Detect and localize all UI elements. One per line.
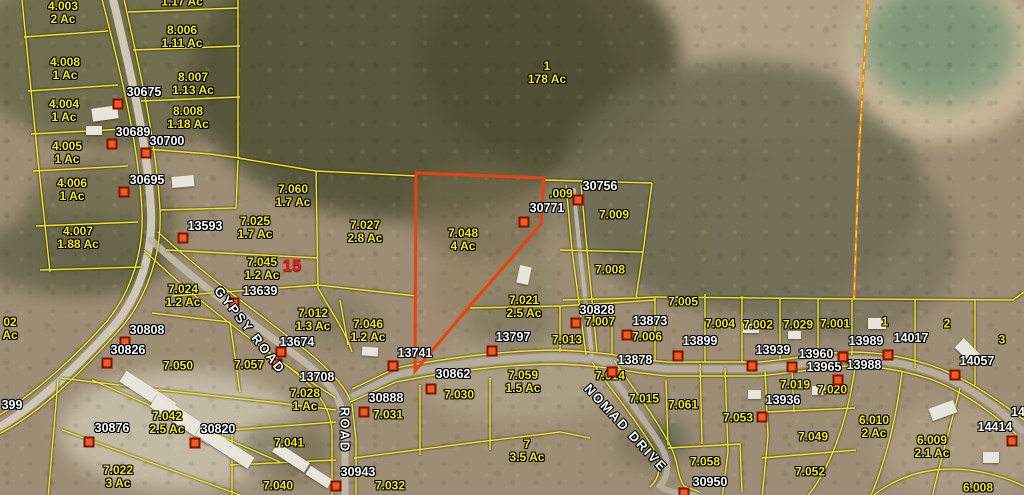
parcel-label: 4.0061 Ac: [57, 177, 87, 203]
parcel-acreage: 1.88 Ac: [57, 238, 99, 251]
parcel-label: 7.029: [783, 319, 813, 332]
parcel-label: 4.0051 Ac: [52, 140, 82, 166]
parcel-number: 7.053: [723, 412, 753, 425]
parcel-number: 7.052: [795, 466, 825, 479]
parcel-label: 7.031: [373, 409, 403, 422]
parcel-sale-marker[interactable]: [359, 407, 370, 418]
parcel-label: 7.0241.2 Ac: [166, 283, 201, 309]
parcel-sale-marker[interactable]: [571, 318, 582, 329]
marker-id-label: 30826: [111, 343, 146, 357]
parcel-sale-marker[interactable]: [426, 384, 437, 395]
parcel-number: 7.013: [552, 334, 582, 347]
parcel-label: 7.0223 Ac: [103, 464, 133, 490]
parcel-number: 7.001: [820, 318, 850, 331]
parcel-acreage: 1.18 Ac: [167, 118, 209, 131]
parcel-label: 7.052: [795, 466, 825, 479]
parcel-label: 7.0461.2 Ac: [351, 318, 386, 344]
parcel-label: 7.013: [552, 334, 582, 347]
parcel-sale-marker[interactable]: [573, 195, 584, 206]
marker-id-label: 13989: [849, 334, 884, 348]
parcel-sale-marker[interactable]: [1007, 436, 1018, 447]
parcel-sale-marker[interactable]: [487, 346, 498, 357]
labels-layer: 4.0032 Ac4.0081 Ac4.0041 Ac4.0051 Ac4.00…: [0, 0, 1024, 495]
parcel-number: 7.061: [668, 399, 698, 412]
marker-id-label: 13960: [799, 347, 834, 361]
parcel-label: 7.041: [274, 437, 304, 450]
parcel-acreage: 2.5 Ac: [150, 423, 185, 436]
marker-id-label: 399: [2, 398, 23, 412]
parcel-acreage: 2.8 Ac: [348, 232, 383, 245]
parcel-acreage: 1 Ac: [50, 69, 80, 82]
parcel-sale-marker[interactable]: [607, 367, 618, 378]
parcel-acreage: 1.2 Ac: [245, 269, 280, 282]
parcel-sale-marker[interactable]: [622, 330, 633, 341]
parcel-label: 4.0041 Ac: [49, 98, 79, 124]
parcel-label: 7.0121.3 Ac: [296, 307, 331, 333]
parcel-sale-marker[interactable]: [107, 139, 118, 150]
marker-id-label: 13873: [633, 314, 668, 328]
parcel-label: 7.0601.7 Ac: [276, 183, 311, 209]
parcel-number: 7.057: [234, 359, 264, 372]
marker-id-label: 13899: [683, 334, 718, 348]
parcel-label: 7.002: [743, 319, 773, 332]
parcel-label: 8.0081.18 Ac: [167, 105, 209, 131]
parcel-acreage: 2.1 Ac: [915, 447, 950, 460]
parcel-number: 7.004: [705, 318, 735, 331]
parcel-label: 7.040: [263, 480, 293, 493]
parcel-acreage: 1.2 Ac: [166, 296, 201, 309]
parcel-number: 7.031: [373, 409, 403, 422]
parcel-number: 3: [999, 334, 1006, 347]
parcel-label: 7.0272.8 Ac: [348, 219, 383, 245]
parcel-sale-marker[interactable]: [679, 488, 690, 495]
parcel-acreage: 178 Ac: [528, 73, 566, 86]
parcel-sale-marker[interactable]: [190, 438, 201, 449]
parcel-sale-marker[interactable]: [833, 375, 844, 386]
marker-id-label: 13965: [807, 360, 842, 374]
marker-id-label: 30888: [369, 391, 404, 405]
parcel-number: .009: [549, 188, 572, 201]
parcel-label: 6.008: [963, 482, 993, 495]
parcel-sale-marker[interactable]: [119, 187, 130, 198]
parcel-label: 7.053: [723, 412, 753, 425]
marker-id-label: 13878: [618, 353, 653, 367]
parcel-sale-marker[interactable]: [84, 437, 95, 448]
parcel-acreage: 1 Ac: [52, 153, 82, 166]
parcel-number: 7.058: [690, 456, 720, 469]
parcel-label: 7.0591.5 Ac: [506, 369, 541, 395]
parcel-label: 7.015: [629, 393, 659, 406]
parcel-acreage: 2.5 Ac: [507, 307, 542, 320]
marker-id-label: 13674: [280, 335, 315, 349]
parcel-label: 7.005: [668, 296, 698, 309]
parcel-sale-marker[interactable]: [747, 361, 758, 372]
parcel-label: 6.0102 Ac: [859, 414, 889, 440]
route-number-label: 15: [283, 256, 302, 276]
parcel-sale-marker[interactable]: [883, 350, 894, 361]
parcel-sale-marker[interactable]: [331, 481, 342, 492]
marker-id-label: 13741: [398, 346, 433, 360]
parcel-label: 1: [882, 316, 889, 329]
parcel-acreage: 3 Ac: [103, 477, 133, 490]
parcel-label: 2: [944, 318, 951, 331]
parcel-number: 7.041: [274, 437, 304, 450]
marker-id-label: 30808: [130, 323, 165, 337]
marker-id-label: 30771: [530, 201, 565, 215]
parcel-label: 1178 Ac: [528, 60, 566, 86]
road-name-label: ROAD: [338, 407, 353, 453]
parcel-number: 1: [882, 316, 889, 329]
parcel-number: 7.030: [444, 389, 474, 402]
parcel-label: 8.0071.13 Ac: [172, 71, 214, 97]
parcel-sale-marker[interactable]: [757, 412, 768, 423]
parcel-acreage: 1 Ac: [49, 111, 79, 124]
marker-id-label: 30700: [150, 134, 185, 148]
parcel-label: 02Ac: [2, 316, 17, 342]
parcel-acreage: 1.13 Ac: [172, 84, 214, 97]
parcel-sale-marker[interactable]: [102, 358, 113, 369]
parcel-label: 6.0092.1 Ac: [915, 434, 950, 460]
parcel-label: 73.5 Ac: [510, 438, 545, 464]
parcel-number: 7.007: [585, 316, 615, 329]
marker-id-label: 30828: [580, 303, 615, 317]
parcel-number: 7.008: [595, 264, 625, 277]
marker-id-label: 30950: [693, 475, 728, 489]
parcel-number: 7.002: [743, 319, 773, 332]
parcel-acreage: 1.17 Ac: [161, 0, 203, 9]
parcel-label: 7.004: [705, 318, 735, 331]
parcel-acreage: 4 Ac: [448, 240, 478, 253]
parcel-number: 7.019: [780, 379, 810, 392]
marker-id-label: 30756: [583, 179, 618, 193]
parcel-number: 7.006: [632, 331, 662, 344]
parcel-label: 7.006: [632, 331, 662, 344]
parcel-sale-marker[interactable]: [113, 99, 124, 110]
marker-id-label: 30695: [130, 173, 165, 187]
parcel-label: 4.0081 Ac: [50, 56, 80, 82]
parcel-acreage: 3.5 Ac: [510, 451, 545, 464]
parcel-label: 7.058: [690, 456, 720, 469]
marker-id-label: 14057: [960, 354, 995, 368]
parcel-label: 7.030: [444, 389, 474, 402]
marker-id-label: 30862: [436, 367, 471, 381]
parcel-acreage: 1.7 Ac: [276, 196, 311, 209]
parcel-sale-marker[interactable]: [673, 351, 684, 362]
parcel-sale-marker[interactable]: [519, 217, 530, 228]
parcel-label: 7.019: [780, 379, 810, 392]
parcel-sale-marker[interactable]: [388, 361, 399, 372]
parcel-acreage: Ac: [2, 329, 17, 342]
parcel-number: 7.040: [263, 480, 293, 493]
marker-id-label: 14: [1011, 405, 1024, 419]
parcel-number: 7.050: [163, 360, 193, 373]
parcel-label: 8.0061.11 Ac: [162, 24, 203, 50]
parcel-label: 7.0212.5 Ac: [507, 294, 542, 320]
parcel-number: 7.049: [798, 431, 828, 444]
marker-id-label: 14017: [894, 331, 929, 345]
parcel-acreage: 1.11 Ac: [162, 37, 203, 50]
marker-id-label: 13593: [188, 219, 223, 233]
parcel-label: 7.009: [599, 209, 629, 222]
parcel-label: 1.17 Ac: [161, 0, 203, 9]
marker-id-label: 13988: [847, 358, 882, 372]
parcel-sale-marker[interactable]: [950, 370, 961, 381]
parcel-sale-marker[interactable]: [141, 148, 152, 159]
parcel-label: 7.007: [585, 316, 615, 329]
parcel-acreage: 1.2 Ac: [351, 331, 386, 344]
parcel-acreage: 2 Ac: [859, 427, 889, 440]
parcel-sale-marker[interactable]: [838, 352, 849, 363]
marker-id-label: 30675: [127, 85, 162, 99]
parcel-label: 4.0032 Ac: [48, 0, 78, 26]
map-canvas[interactable]: 4.0032 Ac4.0081 Ac4.0041 Ac4.0051 Ac4.00…: [0, 0, 1024, 495]
parcel-acreage: 1.3 Ac: [296, 320, 331, 333]
parcel-acreage: 1.7 Ac: [238, 228, 273, 241]
parcel-label: .009: [549, 188, 572, 201]
parcel-sale-marker[interactable]: [787, 362, 798, 373]
parcel-acreage: 1 Ac: [290, 400, 320, 413]
parcel-number: 7.029: [783, 319, 813, 332]
parcel-label: 7.0422.5 Ac: [150, 410, 185, 436]
parcel-label: 7.001: [820, 318, 850, 331]
parcel-label: 7.061: [668, 399, 698, 412]
parcel-label: 3: [999, 334, 1006, 347]
marker-id-label: 14414: [978, 420, 1013, 434]
parcel-number: 7.032: [375, 480, 405, 493]
parcel-acreage: 2 Ac: [48, 13, 78, 26]
parcel-label: 7.049: [798, 431, 828, 444]
parcel-number: 6.008: [963, 482, 993, 495]
parcel-acreage: 1.5 Ac: [506, 382, 541, 395]
marker-id-label: 30689: [116, 125, 151, 139]
marker-id-label: 13708: [300, 370, 335, 384]
parcel-label: 7.057: [234, 359, 264, 372]
parcel-label: 7.0251.7 Ac: [238, 215, 273, 241]
parcel-acreage: 1 Ac: [57, 190, 87, 203]
parcel-number: 7.005: [668, 296, 698, 309]
marker-id-label: 30876: [95, 421, 130, 435]
parcel-label: 7.0484 Ac: [448, 227, 478, 253]
marker-id-label: 30943: [341, 465, 376, 479]
marker-id-label: 13639: [243, 284, 278, 298]
parcel-label: 7.0281 Ac: [290, 387, 320, 413]
marker-id-label: 13939: [756, 343, 791, 357]
marker-id-label: 30820: [201, 422, 236, 436]
parcel-label: 4.0071.88 Ac: [57, 225, 99, 251]
parcel-number: 2: [944, 318, 951, 331]
marker-id-label: 13936: [766, 393, 801, 407]
marker-id-label: 13797: [496, 330, 531, 344]
parcel-label: 7.032: [375, 480, 405, 493]
parcel-number: 7.009: [599, 209, 629, 222]
parcel-label: 7.050: [163, 360, 193, 373]
parcel-label: 7.0451.2 Ac: [245, 256, 280, 282]
parcel-sale-marker[interactable]: [178, 233, 189, 244]
parcel-label: 7.008: [595, 264, 625, 277]
parcel-number: 7.015: [629, 393, 659, 406]
